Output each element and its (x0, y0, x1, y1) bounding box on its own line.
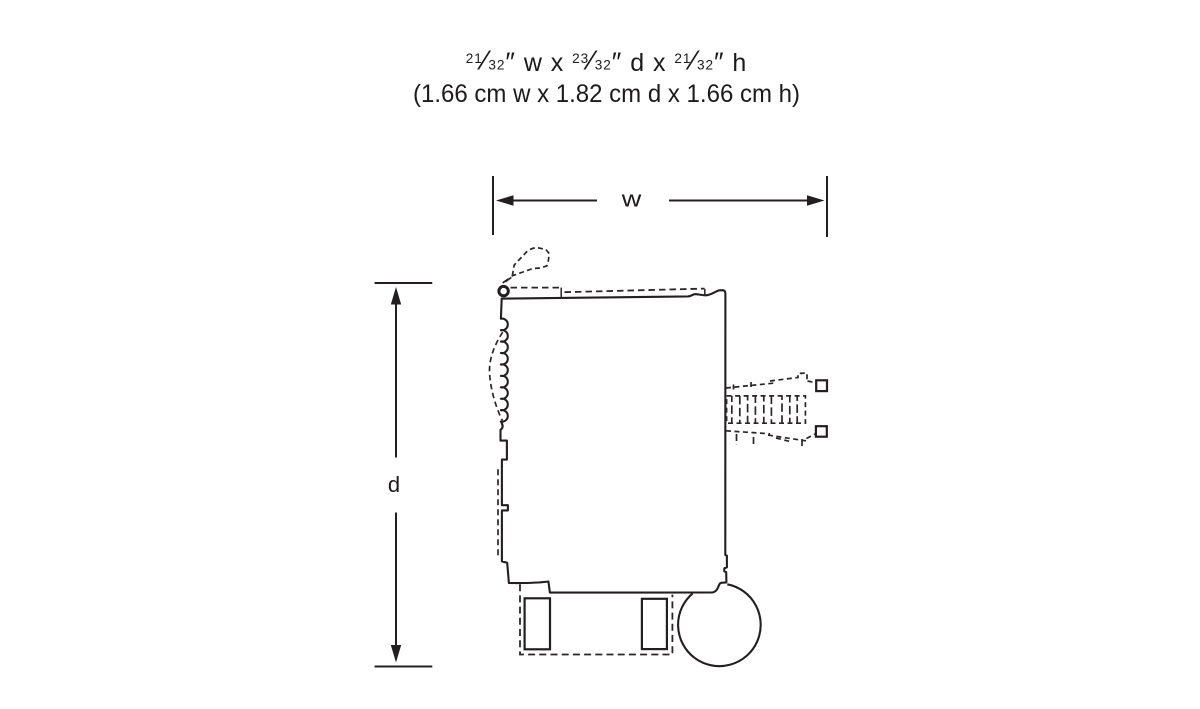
svg-text:w: w (621, 187, 642, 212)
svg-text:21⁄32″ w x 23⁄32″ d x 21⁄32″ h: 21⁄32″ w x 23⁄32″ d x 21⁄32″ h (466, 44, 748, 77)
svg-text:d: d (388, 472, 400, 497)
svg-text:(1.66 cm w x 1.82 cm d x 1.66: (1.66 cm w x 1.82 cm d x 1.66 cm h) (413, 80, 800, 108)
